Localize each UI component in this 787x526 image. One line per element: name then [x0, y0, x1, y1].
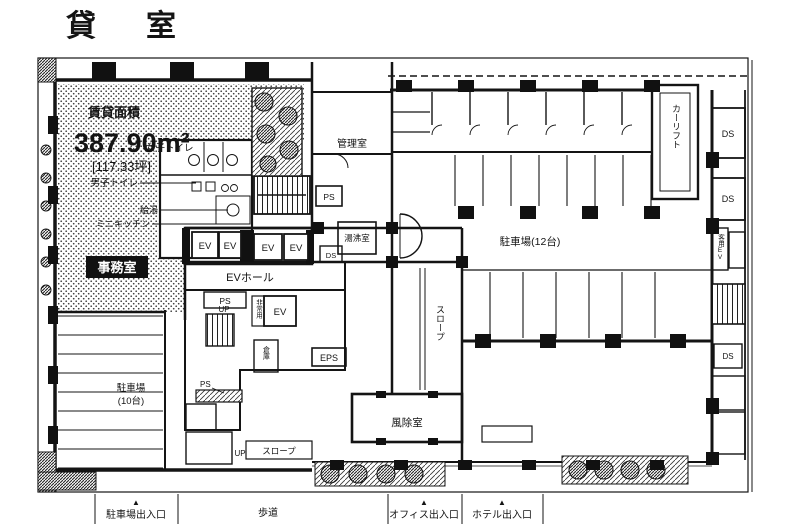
office-entrance-label: オフィス出入口 — [389, 508, 459, 521]
corner-block — [38, 58, 56, 82]
hotel-stair — [712, 284, 745, 324]
entrance-marker: ▲ — [132, 498, 140, 507]
car-lift: カーリフト — [652, 85, 698, 199]
rental-area-heading: 賃貸面積 — [87, 105, 141, 120]
hot-water-label: 湯沸室 — [344, 233, 370, 243]
storage-label: 倉庫 — [263, 345, 271, 361]
office-label: 事務室 — [97, 260, 136, 275]
toilet-fixture — [227, 155, 238, 166]
sidewalk-labels: ▲ 駐車場出入口 歩道 ▲ オフィス出入口 ▲ ホテル出入口 — [95, 494, 543, 524]
parking-right: 駐車場(12台) — [455, 155, 655, 338]
vestibule-label: 風除室 — [391, 416, 423, 429]
womens-toilet-label: 女子トイレ — [146, 142, 194, 154]
management-room-label: 管理室 — [337, 137, 367, 150]
door-arc — [432, 125, 442, 135]
emergency-label: 非常用 — [255, 298, 263, 320]
shaft-ps-top: PS — [316, 186, 342, 206]
parking-left-count: (10台) — [118, 395, 144, 407]
ds-label: DS — [722, 129, 735, 139]
hotel-rooms — [392, 92, 632, 135]
ev-label: EV — [224, 241, 237, 252]
corner-paving — [38, 472, 96, 490]
floor-plan-page: 貸 室 賃貸面積 387.90m² [117.33坪] 事務室 — [0, 0, 787, 526]
door-arc — [584, 125, 594, 135]
guest-ev-label: 客用EV — [717, 233, 725, 261]
door-arc — [546, 125, 556, 135]
entrance-marker: ▲ — [498, 498, 506, 507]
office-stair — [254, 176, 310, 214]
entry-ramp: UP スロープ — [234, 441, 312, 459]
tea-label: 給湯 — [140, 204, 158, 215]
toilet-fixture — [189, 155, 200, 166]
ev-label: EV — [199, 241, 212, 252]
ev-label: EV — [290, 243, 303, 254]
utility-block: PS UP 非常用 EV 倉庫 EPS PS — [185, 290, 346, 464]
toilet-fixture — [208, 155, 219, 166]
ds-label: DS — [722, 194, 735, 204]
rental-area-tsubo: [117.33坪] — [92, 159, 151, 174]
ds-label: DS — [722, 352, 733, 361]
door-arc — [334, 154, 348, 168]
kitchenette-label: ミニキッチン — [96, 219, 150, 229]
ev-label: EV — [262, 243, 275, 254]
hotel-entrance-label: ホテル出入口 — [472, 508, 532, 521]
door-arc — [622, 125, 632, 135]
door-arc — [508, 125, 518, 135]
up-label: UP — [218, 305, 229, 314]
mens-toilet-label: 男子トイレ — [90, 178, 138, 189]
up-stair — [206, 314, 234, 346]
door-swing-arc — [400, 214, 422, 258]
parking-left-label: 駐車場 — [117, 382, 146, 394]
up-label: UP — [234, 449, 245, 458]
ev-hall-label: EVホール — [226, 271, 274, 284]
parking-entrance-label: 駐車場出入口 — [106, 508, 166, 521]
lobby-counter — [482, 426, 532, 442]
parking-right-label: 駐車場(12台) — [500, 235, 561, 248]
slope-label: スロープ — [262, 446, 296, 456]
slope-vertical-label: スロープ — [435, 305, 445, 341]
page-title: 貸 室 — [66, 9, 186, 43]
ps-small-label: PS — [200, 380, 211, 389]
floor-plan-drawing: 貸 室 賃貸面積 387.90m² [117.33坪] 事務室 — [0, 0, 787, 526]
management-room: 管理室 — [312, 92, 392, 168]
emergency-ev-label: EV — [274, 307, 287, 318]
door-arc — [470, 125, 480, 135]
sink-fixture — [227, 204, 239, 216]
ps-label: PS — [323, 192, 335, 202]
urinal-fixture — [206, 182, 215, 191]
car-lift-label: カーリフト — [671, 104, 681, 149]
parking-left: 駐車場 (10台) — [58, 316, 163, 468]
entrance-marker: ▲ — [420, 498, 428, 507]
eps-label: EPS — [320, 353, 338, 363]
ramp-corridor: スロープ — [420, 268, 445, 390]
ev-hall: EV EV EV EV EVホール — [182, 228, 314, 284]
vestibule: 風除室 — [352, 391, 462, 445]
sidewalk-label: 歩道 — [258, 506, 278, 519]
ds-label: DS — [326, 251, 336, 260]
